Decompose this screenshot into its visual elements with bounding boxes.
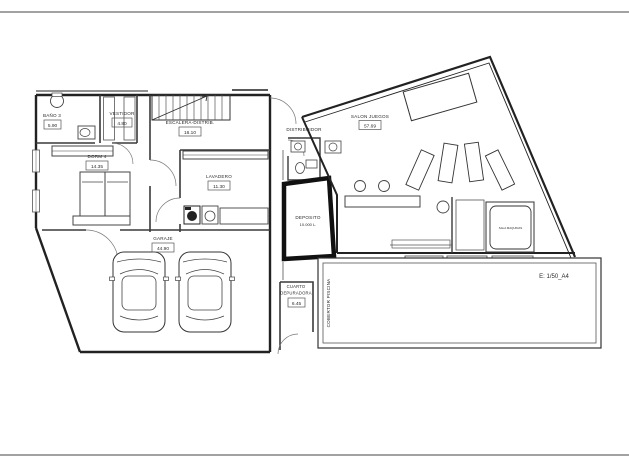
- distribuidor-label: DISTRIBUIDOR: [286, 127, 322, 132]
- deposito-capacity: 10.000 L.: [300, 222, 317, 227]
- vestidor-label: VESTIDOR: [109, 111, 135, 116]
- bar-counter: [345, 181, 449, 214]
- lavadero-area: 11.30: [213, 184, 225, 190]
- cuarto-depuradora-label-2: DEPURADORA: [280, 291, 312, 296]
- escalera-label: ESCALERA-DISTRIB.: [166, 120, 215, 125]
- escalera-area: 16.10: [184, 130, 196, 136]
- lavadero-label: LAVADERO: [206, 174, 232, 179]
- floor-plan-drawing: BAÑO 3 5.90 VESTIDOR 4.80 ESCALERA-DISTR…: [0, 0, 629, 476]
- car: [176, 252, 235, 332]
- bed: [73, 172, 130, 225]
- salon-label: SALON JUEGOS: [351, 114, 389, 119]
- scale-label: E: 1/50_A4: [539, 274, 569, 280]
- cuarto-depuradora-label-1: CUARTO: [287, 284, 306, 289]
- garaje-label: GARAJE: [153, 236, 173, 241]
- pool-cover-deck: [318, 258, 601, 348]
- dorm4-area: 14.35: [91, 164, 103, 170]
- cobertor-piscina-label: COBERTOR PISCINA: [326, 278, 331, 327]
- lounge-chairs: [406, 142, 515, 190]
- car: [110, 252, 169, 332]
- garaje-area: 44.90: [157, 246, 169, 252]
- sala-maquinas-label: SALA MAQUINAS: [499, 226, 523, 230]
- dorm4-label: DORM 4: [87, 154, 106, 159]
- vestidor-area: 4.80: [117, 121, 127, 127]
- bano3-label: BAÑO 3: [43, 112, 61, 118]
- staircase: [152, 95, 230, 120]
- deposito-label: DEPOSITO: [295, 215, 320, 220]
- bano3-area: 5.90: [48, 123, 58, 129]
- washer-dryer-icon: [184, 206, 218, 224]
- cuarto-depuradora-area: 6.45: [292, 301, 302, 307]
- salon-area: 57.69: [364, 124, 376, 130]
- floor-plan-sheet: BAÑO 3 5.90 VESTIDOR 4.80 ESCALERA-DISTR…: [0, 0, 629, 476]
- vestidor-closet: [104, 97, 136, 140]
